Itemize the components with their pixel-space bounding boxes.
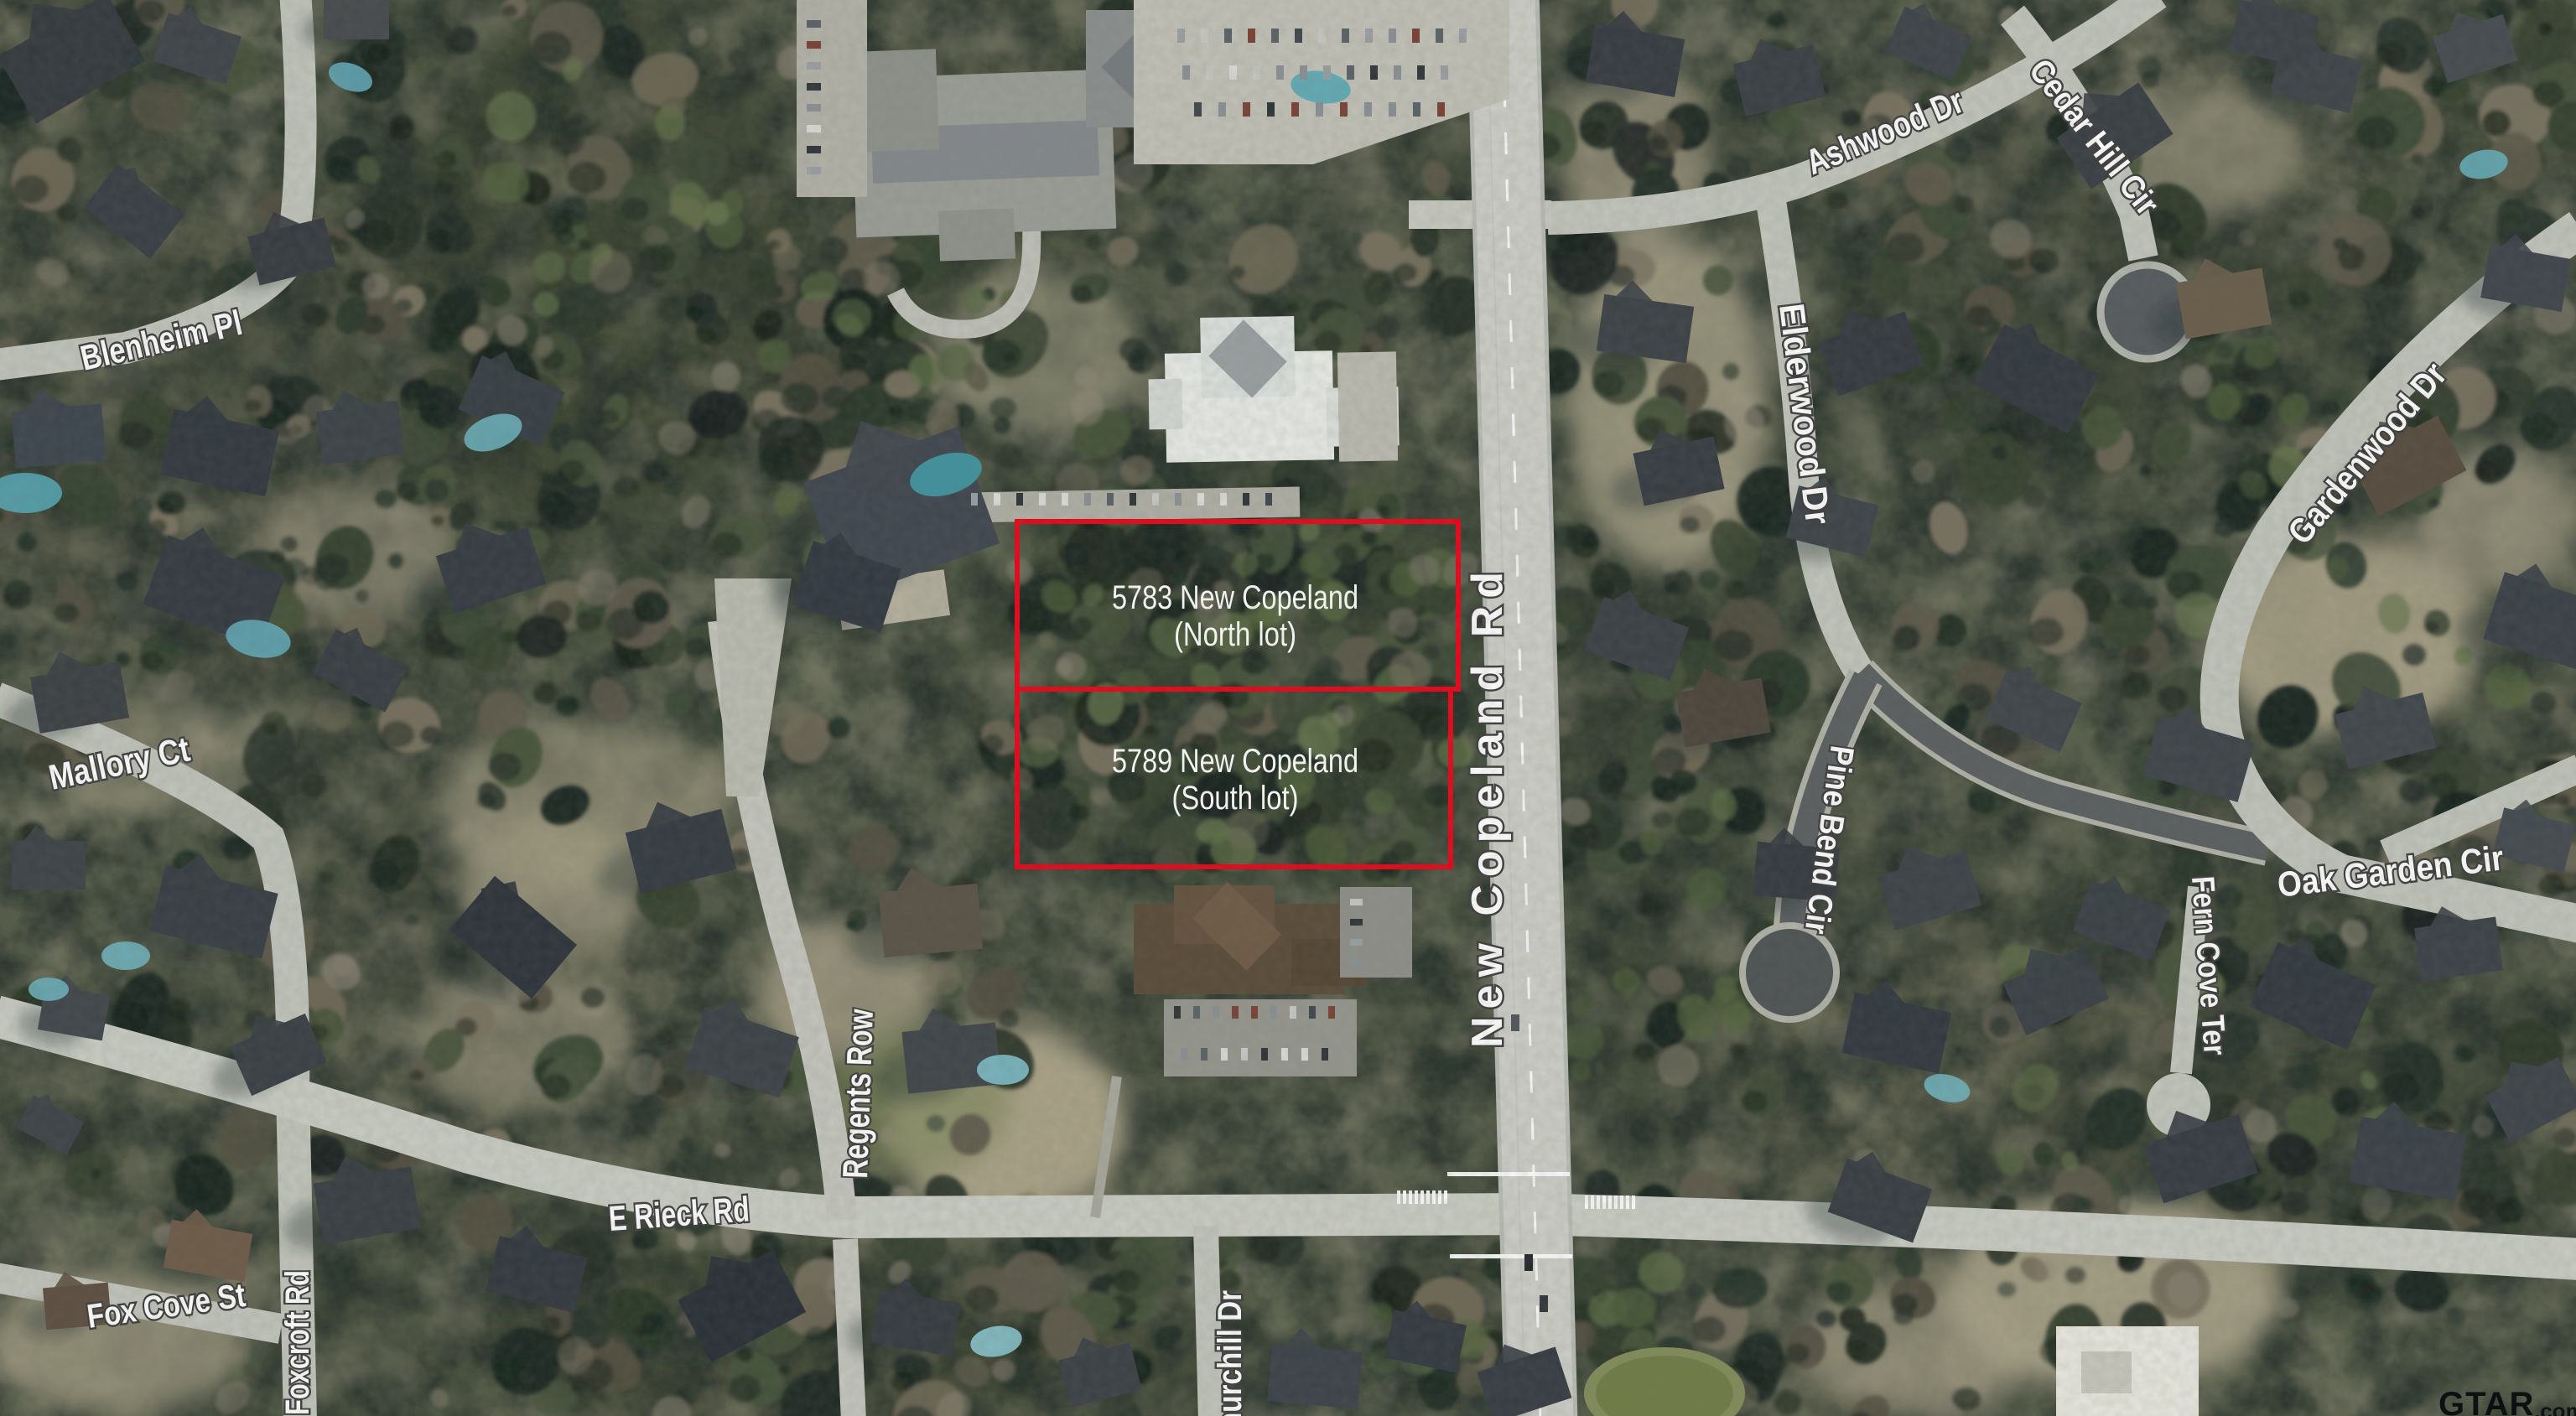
svg-text:.com: .com: [2534, 1398, 2576, 1416]
svg-text:GTAR: GTAR: [2438, 1386, 2534, 1416]
